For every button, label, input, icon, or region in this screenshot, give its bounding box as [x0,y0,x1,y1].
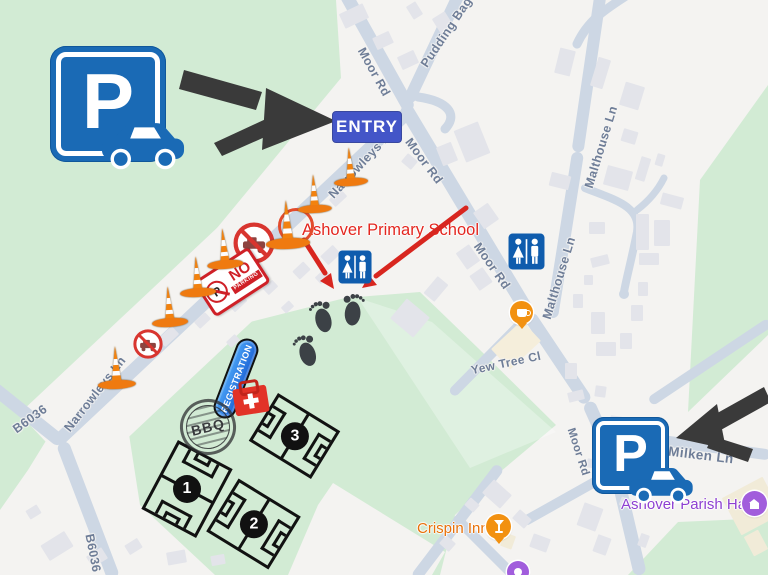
cafe-icon [517,309,527,317]
building [594,385,606,397]
car-icon [100,118,186,171]
pitch-number: 1 [173,475,201,503]
entry-badge-label: ENTRY [336,117,398,137]
building [636,214,649,250]
pitch-number: 3 [281,422,309,450]
building [573,294,583,308]
hall-icon [749,499,760,509]
cocktail-icon [492,520,506,533]
attraction-icon [514,568,522,575]
toilets-icon [508,233,545,270]
building [631,305,643,321]
crispin-inn-label: Crispin Inn [417,520,489,537]
building [638,282,648,296]
parish-hall-pin[interactable] [742,491,767,516]
pitch-number: 2 [240,510,268,538]
crispin-inn-pin[interactable] [486,514,511,539]
building [565,363,577,379]
building [654,220,670,246]
building [639,253,659,265]
bbq-grill-icon [181,400,234,453]
traffic-cone-icon [332,147,369,187]
traffic-cone-icon [96,346,136,390]
first-aid-icon [232,385,270,417]
traffic-cone-icon [264,200,310,250]
building [596,342,616,356]
building [166,549,187,565]
footprint-icon [340,288,367,328]
school-label: Ashover Primary School [302,221,479,240]
no-parking-circle-icon [133,329,163,359]
building [591,312,605,334]
building [589,222,605,234]
cafe-pin[interactable] [510,301,533,324]
entry-badge: ENTRY [332,111,402,143]
building [584,275,593,285]
pin-pointer [494,538,504,544]
map-canvas: Pudding Bag Ln Moor Rd Moor Rd Moor Rd M… [0,0,768,575]
car-icon [628,464,694,505]
toilets-icon [338,250,372,284]
building [620,333,632,349]
pin-pointer [517,323,527,329]
traffic-cone-icon [150,286,189,328]
